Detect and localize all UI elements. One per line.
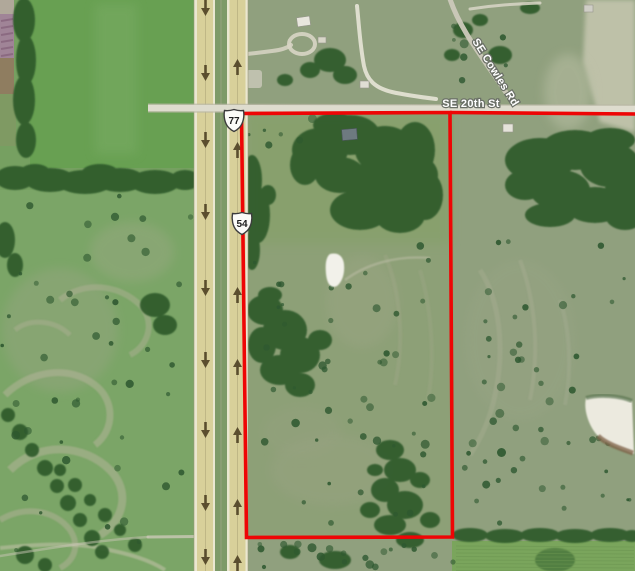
building [503, 124, 513, 132]
map-canvas: 77 54 SE 20th St SE Cowles Rd [0, 0, 635, 571]
route-77-number: 77 [228, 116, 240, 127]
road-label-se-20th-st: SE 20th St [442, 98, 499, 110]
building [342, 128, 358, 140]
satellite-map[interactable]: 77 54 SE 20th St SE Cowles Rd [0, 0, 635, 571]
se-20th-st-road [148, 108, 635, 109]
building [318, 37, 326, 43]
highway-us-77-54 [194, 0, 248, 571]
building [297, 16, 311, 27]
building [360, 81, 369, 88]
boundary-top-extension [450, 113, 635, 115]
route-54-number: 54 [236, 219, 248, 230]
building [584, 5, 593, 12]
